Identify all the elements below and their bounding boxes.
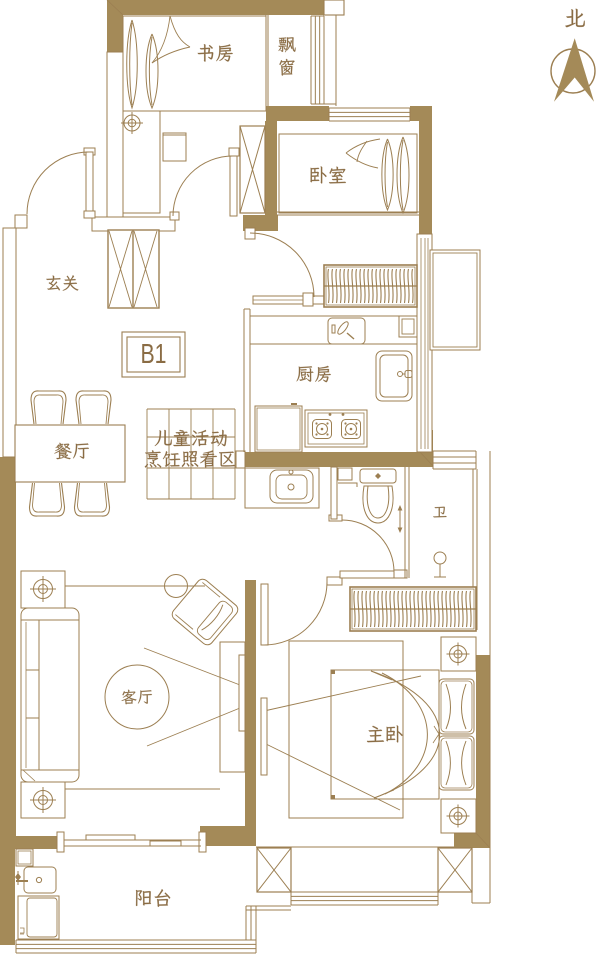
svg-text:B1: B1 <box>141 338 167 369</box>
